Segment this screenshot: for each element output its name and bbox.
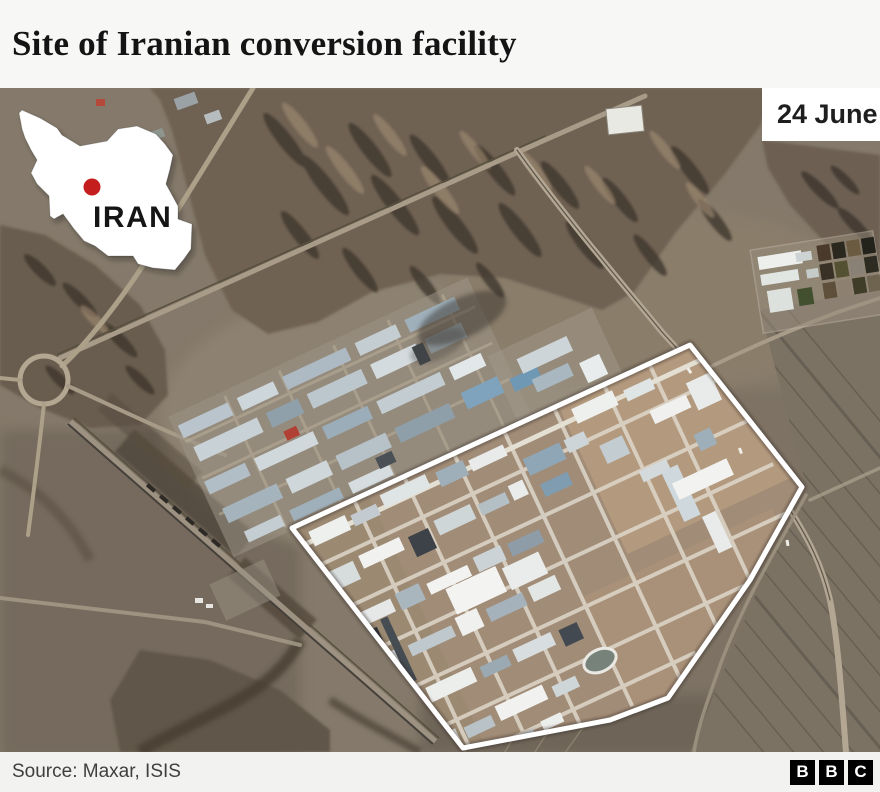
- satellite-image: IRAN: [0, 88, 880, 752]
- pond-cells: [816, 237, 880, 299]
- iran-label: IRAN: [93, 201, 172, 234]
- bbc-logo-block: B: [819, 760, 844, 785]
- footer-bar: Source: Maxar, ISIS B B C: [0, 752, 880, 792]
- location-marker-dot: [84, 179, 101, 196]
- date-badge: 24 June: [762, 88, 880, 141]
- page-title: Site of Iranian conversion facility: [0, 24, 529, 64]
- satellite-map: IRAN 24 June: [0, 88, 880, 752]
- header-bar: Site of Iranian conversion facility: [0, 0, 880, 88]
- bbc-logo-block: C: [848, 760, 873, 785]
- bbc-logo: B B C: [790, 760, 873, 785]
- bbc-logo-block: B: [790, 760, 815, 785]
- source-text: Source: Maxar, ISIS: [12, 761, 181, 783]
